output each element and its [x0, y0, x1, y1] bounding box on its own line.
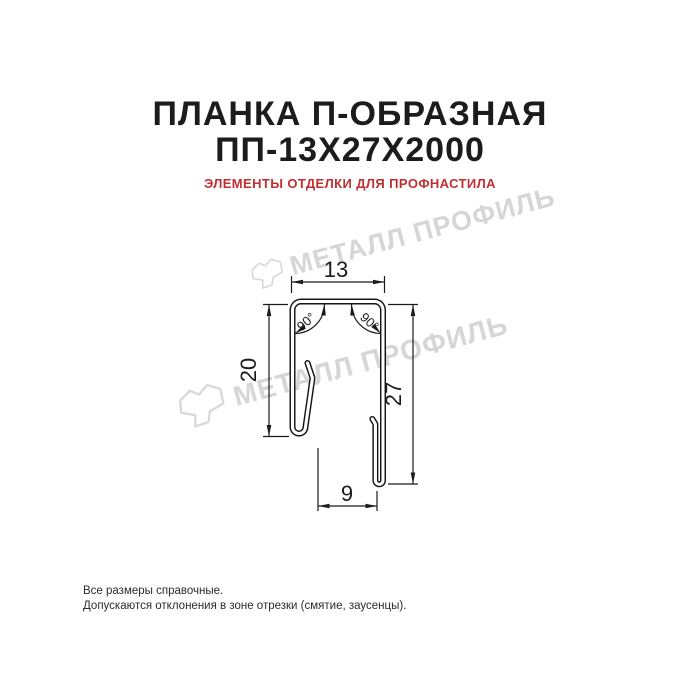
arrow-icon	[411, 305, 416, 317]
disclaimer-line2: Допускаются отклонения в зоне отрезки (с…	[83, 599, 406, 614]
dim-label-bottom-width: 9	[341, 481, 353, 506]
dim-label-top-width: 13	[324, 257, 348, 282]
arrow-icon	[411, 473, 416, 485]
arrow-icon	[318, 504, 330, 509]
arrow-icon	[292, 280, 304, 285]
dim-label-right-height: 27	[381, 382, 406, 406]
angle-label-left: 90°	[294, 310, 319, 334]
arrow-icon	[267, 305, 272, 317]
arrow-icon	[366, 504, 378, 509]
arrow-icon	[267, 425, 272, 437]
disclaimer-line1: Все размеры справочные.	[83, 584, 406, 599]
product-page: ПЛАНКА П-ОБРАЗНАЯ ПП-13Х27Х2000 ЭЛЕМЕНТЫ…	[0, 0, 700, 700]
disclaimer: Все размеры справочные. Допускаются откл…	[83, 584, 406, 614]
arrow-icon	[373, 280, 385, 285]
dim-label-left-height: 20	[236, 358, 261, 382]
